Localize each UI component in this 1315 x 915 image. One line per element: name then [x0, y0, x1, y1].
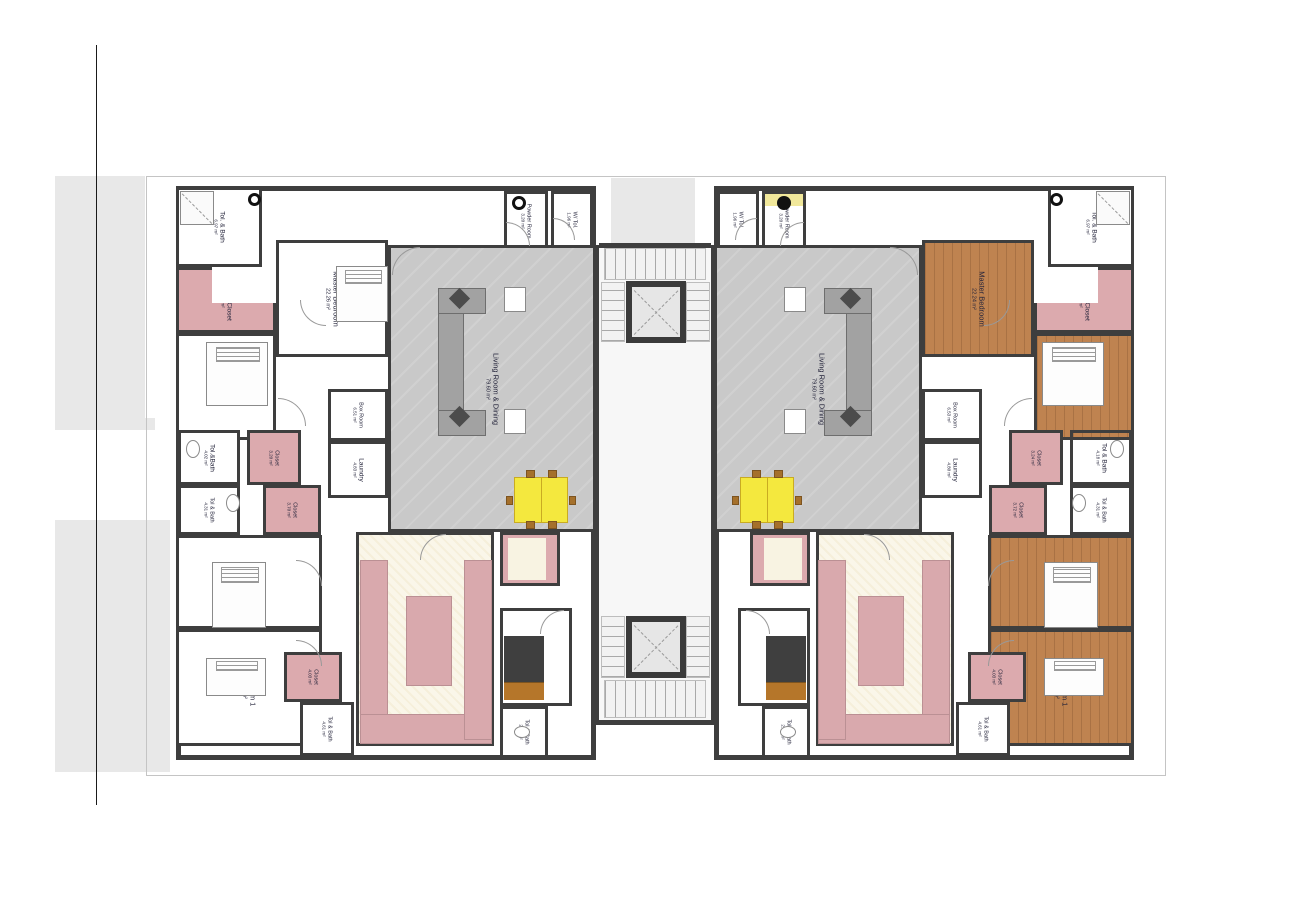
- dining-table: [514, 477, 568, 523]
- bed-headboard: [216, 347, 260, 363]
- bed-headboard: [1054, 661, 1097, 671]
- bed: [206, 658, 266, 696]
- room-tol-bath: Tol & Bath4.18 m²: [1070, 430, 1132, 485]
- room-area: 6.97 m²: [1085, 211, 1090, 242]
- room-label: Tol. & Bath: [218, 211, 225, 242]
- bed: [336, 266, 388, 322]
- room-label-group: Closet4.03 m²: [991, 669, 1002, 685]
- closet-shelf: [1034, 267, 1098, 303]
- room-label: Tol & Bath: [208, 497, 214, 522]
- elevator: [626, 281, 686, 343]
- room-label: Box Room: [951, 402, 957, 428]
- chair: [732, 496, 739, 505]
- chair: [795, 496, 802, 505]
- bed-headboard: [216, 661, 259, 671]
- pantry-shelf: [764, 538, 802, 580]
- room-label: Tol.&Bath: [208, 444, 215, 472]
- chair: [506, 496, 513, 505]
- kitchen-counter: [360, 560, 388, 740]
- bq-bed-foot: [504, 682, 544, 700]
- core-wall: [599, 243, 711, 248]
- room-box-room: Box Room6.53 m²: [922, 389, 982, 441]
- room-tol-bath: Tol & Bath4.61 m²: [300, 702, 354, 756]
- room-label-group: Closet3.72 m²: [1012, 502, 1023, 518]
- chair: [548, 470, 557, 478]
- room-label-group: Closet3.24 m²: [1030, 450, 1041, 466]
- bed: [206, 342, 268, 406]
- room-area: 4.18 m²: [1095, 443, 1100, 473]
- toilet-icon: [226, 494, 240, 512]
- bed: [1044, 658, 1104, 696]
- room-area: 3.70 m²: [286, 502, 291, 518]
- room-tol-bath: Tol & Bath4.61 m²: [956, 702, 1010, 756]
- room-label: Tol & Bath: [1100, 443, 1107, 473]
- room-label-group: Box Room6.51 m²: [352, 402, 363, 428]
- stairs: [604, 248, 706, 280]
- side-table: [504, 409, 526, 434]
- chair: [774, 521, 783, 529]
- room-area: 4.31 m²: [203, 497, 208, 522]
- room-label: Closet: [996, 669, 1002, 685]
- room-laundry: Laundry4.83 m²: [328, 441, 388, 498]
- sink-icon: [777, 196, 791, 210]
- bed-headboard: [1053, 567, 1091, 583]
- stairs: [686, 616, 710, 678]
- toilet-icon: [248, 193, 261, 206]
- room-area: 1.96 m²: [732, 211, 737, 228]
- toilet-icon: [514, 726, 530, 738]
- elevator: [626, 616, 686, 678]
- toilet-icon: [186, 440, 200, 458]
- kitchen-counter: [922, 560, 950, 740]
- room-label: Tol & Bath: [1100, 497, 1106, 522]
- room-area: 4.03 m²: [307, 669, 312, 685]
- room-label: Laundry: [357, 458, 364, 482]
- room-label: Tol & Bath: [326, 716, 332, 741]
- room-label: Closet: [273, 450, 279, 466]
- room-area: 4.31 m²: [1095, 497, 1100, 522]
- room-area: 6.51 m²: [352, 402, 357, 428]
- bed: [1042, 342, 1104, 406]
- stairs: [604, 680, 706, 718]
- room-closet: Closet3.70 m²: [263, 485, 321, 535]
- kitchen-counter: [406, 596, 452, 686]
- room-label: Closet: [1017, 502, 1023, 518]
- chair: [548, 521, 557, 529]
- room-label-group: Laundry4.83 m²: [352, 458, 365, 482]
- room-area: 3.72 m²: [1012, 502, 1017, 518]
- chair: [526, 470, 535, 478]
- shower-icon: [1096, 191, 1130, 225]
- room-label: Closet: [291, 502, 297, 518]
- room-closet: Closet3.72 m²: [989, 485, 1047, 535]
- room-label-group: Tol & Bath4.18 m²: [1095, 443, 1108, 473]
- sink-icon: [512, 196, 526, 210]
- room-label-group: Box Room6.53 m²: [946, 402, 957, 428]
- room-area: 4.02 m²: [203, 444, 208, 472]
- room-label: Tol & Bath: [982, 716, 988, 741]
- room-area: 4.03 m²: [991, 669, 996, 685]
- stairs: [686, 282, 710, 342]
- site-shading-block: [55, 176, 145, 418]
- site-shading-block: [55, 418, 155, 430]
- room-label-group: Tol.&Bath4.02 m²: [203, 444, 216, 472]
- room-master-bedroom: Master Bedroom22.24 m²: [922, 240, 1034, 357]
- toilet-icon: [1072, 494, 1086, 512]
- bq-bed: [504, 636, 544, 700]
- pantry-shelf: [508, 538, 546, 580]
- room-label-group: Tol & Bath4.61 m²: [321, 716, 332, 741]
- room-label-group: Closet4.03 m²: [307, 669, 318, 685]
- bed: [1044, 562, 1098, 628]
- room-tol-bath: Tol.&Bath4.02 m²: [178, 430, 240, 485]
- room-laundry: Laundry4.80 m²: [922, 441, 982, 498]
- kitchen-counter: [858, 596, 904, 686]
- bed-headboard: [221, 567, 259, 583]
- core-wall: [599, 720, 711, 725]
- table-divider: [541, 478, 542, 522]
- shower-diagonal: [182, 193, 212, 223]
- room-area: 3.20 m²: [268, 450, 273, 466]
- room-label: Closet: [1035, 450, 1041, 466]
- kitchen-counter: [818, 560, 846, 740]
- kitchen-counter: [464, 560, 492, 740]
- bed: [212, 562, 266, 628]
- chair: [774, 470, 783, 478]
- stairs: [601, 282, 625, 342]
- bed-headboard: [1052, 347, 1096, 363]
- room-label-group: Tol & Bath4.31 m²: [1095, 497, 1106, 522]
- chair: [752, 470, 761, 478]
- room-area: 4.83 m²: [352, 458, 357, 482]
- room-area: 6.53 m²: [946, 402, 951, 428]
- room-area: 4.61 m²: [977, 716, 982, 741]
- room-closet: Closet3.20 m²: [247, 430, 301, 485]
- room-label-group: Tol. & Bath6.97 m²: [213, 211, 226, 242]
- room-label: Laundry: [951, 458, 958, 482]
- table-divider: [767, 478, 768, 522]
- side-table: [784, 409, 806, 434]
- closet-shelf: [212, 267, 276, 303]
- toilet-icon: [1050, 193, 1063, 206]
- bed-headboard: [345, 270, 382, 284]
- room-label-group: Closet3.70 m²: [286, 502, 297, 518]
- room-label-group: Laundry4.80 m²: [946, 458, 959, 482]
- room-label-group: Living Room & Dining79.60 m²: [485, 352, 500, 424]
- chair: [569, 496, 576, 505]
- room-label-group: Tol & Bath4.61 m²: [977, 716, 988, 741]
- drawn-vertical-line: [96, 45, 97, 805]
- shower-icon: [180, 191, 214, 225]
- chair: [752, 521, 761, 529]
- room-label: Closet: [312, 669, 318, 685]
- room-label: Box Room: [357, 402, 363, 428]
- room-label: W/ Tol.: [571, 211, 577, 228]
- room-area: 3.24 m²: [1030, 450, 1035, 466]
- stairs: [601, 616, 625, 678]
- floor-plan: Tol. & Bath6.97 m²Walk-in Closet8.01 m²M…: [0, 0, 1315, 915]
- shower-diagonal: [1098, 193, 1128, 223]
- room-area: 4.61 m²: [321, 716, 326, 741]
- room-box-room: Box Room6.51 m²: [328, 389, 388, 441]
- toilet-icon: [1110, 440, 1124, 458]
- room-label-group: Tol & Bath4.31 m²: [203, 497, 214, 522]
- toilet-icon: [780, 726, 796, 738]
- room-area: 22.24 m²: [971, 271, 977, 326]
- chair: [526, 521, 535, 529]
- side-table: [784, 287, 806, 312]
- room-area: 4.80 m²: [946, 458, 951, 482]
- bq-bed-foot: [766, 682, 806, 700]
- room-label: Living Room & Dining: [491, 352, 500, 424]
- room-closet: Closet3.24 m²: [1009, 430, 1063, 485]
- side-table: [504, 287, 526, 312]
- room-label-group: Closet3.20 m²: [268, 450, 279, 466]
- dining-table: [740, 477, 794, 523]
- room-area: 79.60 m²: [811, 352, 817, 424]
- bq-bed: [766, 636, 806, 700]
